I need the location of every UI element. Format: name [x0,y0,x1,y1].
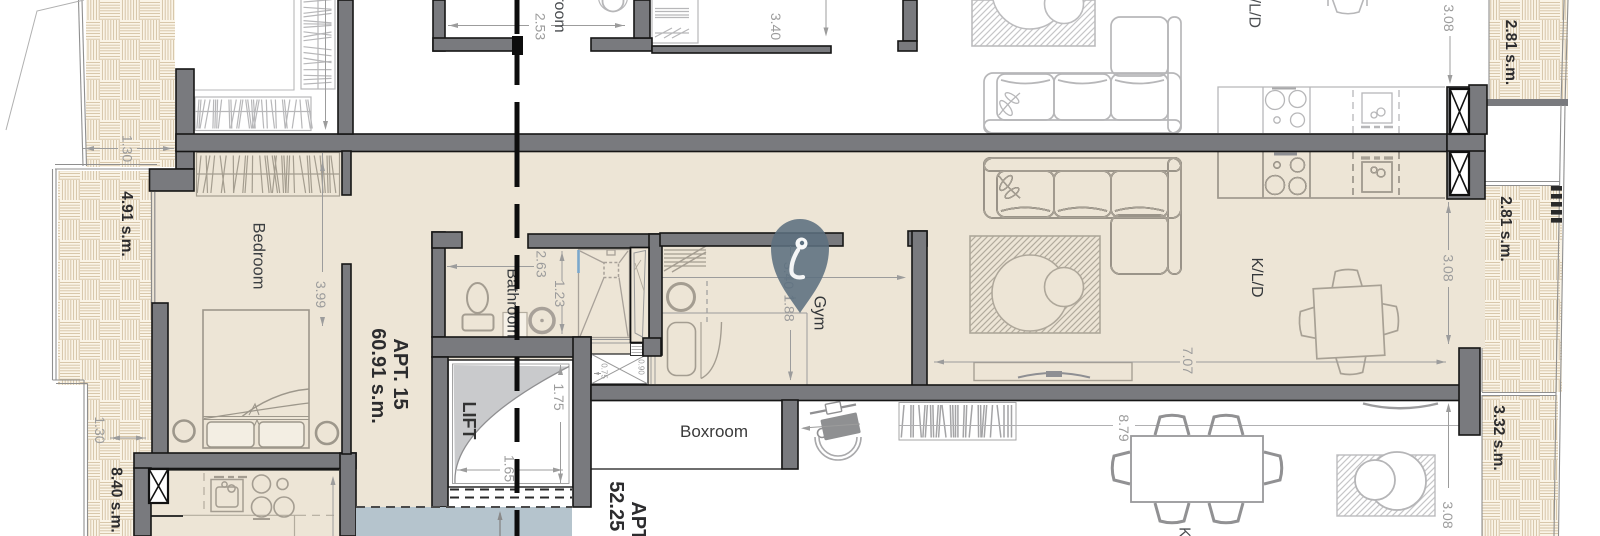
svg-text:1.23: 1.23 [552,280,568,307]
svg-text:2.81 s.m.: 2.81 s.m. [1497,196,1514,262]
svg-text:Bathroom: Bathroom [551,0,568,33]
svg-text:Boxroom: Boxroom [680,422,748,441]
svg-text:3.08: 3.08 [1441,254,1457,281]
svg-text:8.79: 8.79 [1116,414,1132,441]
svg-text:Gym: Gym [811,296,829,331]
svg-text:LIFT: LIFT [459,402,479,440]
svg-text:2.53: 2.53 [533,13,549,40]
svg-text:2.81 s.m.: 2.81 s.m. [1502,20,1519,86]
svg-text:APT. 15: APT. 15 [389,338,411,409]
svg-text:K/L/D: K/L/D [1246,0,1263,28]
svg-text:1.30: 1.30 [120,135,136,162]
svg-text:8.40 s.m.: 8.40 s.m. [108,467,125,533]
svg-text:K/L/D: K/L/D [1248,257,1265,297]
svg-text:0.90: 0.90 [637,359,646,375]
svg-text:1.30: 1.30 [92,416,108,443]
svg-text:APT.: APT. [627,501,649,536]
svg-text:K/L/D: K/L/D [1176,527,1193,536]
svg-text:4.91 s.m.: 4.91 s.m. [118,191,135,257]
svg-text:3.40: 3.40 [768,13,784,40]
svg-text:52.25 s.m.: 52.25 s.m. [605,481,627,536]
svg-text:2.63: 2.63 [534,250,550,277]
svg-text:3.08: 3.08 [1440,501,1456,528]
svg-text:7.07: 7.07 [1180,347,1196,374]
svg-text:1.75: 1.75 [551,383,567,410]
svg-text:0.75: 0.75 [600,363,609,379]
svg-text:Bedroom: Bedroom [250,223,268,290]
svg-text:3.32 s.m.: 3.32 s.m. [1490,405,1507,471]
svg-text:3.08: 3.08 [1441,4,1457,31]
svg-text:60.91 s.m.: 60.91 s.m. [367,328,389,424]
svg-text:3.99: 3.99 [313,281,329,308]
